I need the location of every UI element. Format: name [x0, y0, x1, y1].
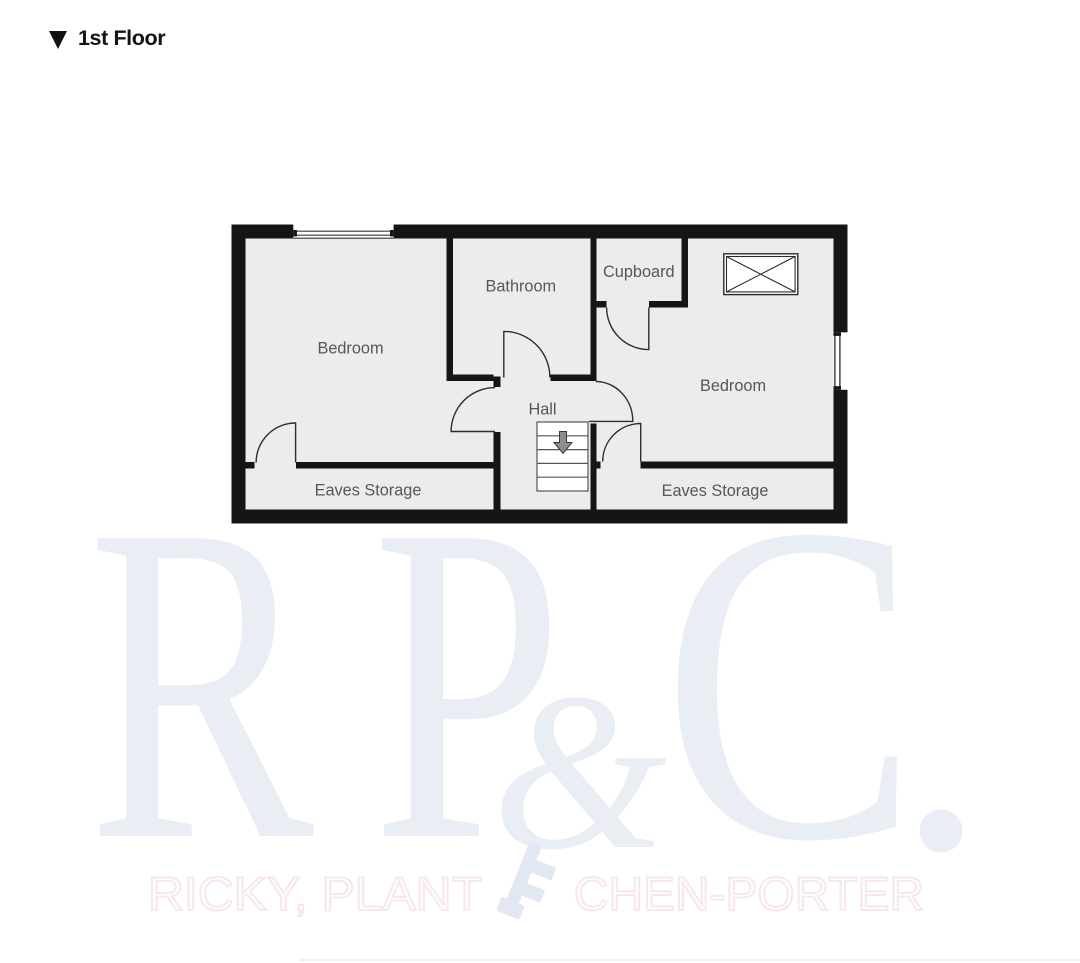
svg-text:Cupboard: Cupboard [603, 263, 675, 281]
svg-text:Eaves Storage: Eaves Storage [315, 482, 422, 500]
svg-text:Eaves Storage: Eaves Storage [662, 482, 769, 500]
svg-text:Bedroom: Bedroom [317, 340, 383, 358]
svg-text:Bathroom: Bathroom [486, 278, 557, 296]
svg-text:Hall: Hall [528, 401, 556, 419]
svg-text:Bedroom: Bedroom [700, 377, 766, 395]
